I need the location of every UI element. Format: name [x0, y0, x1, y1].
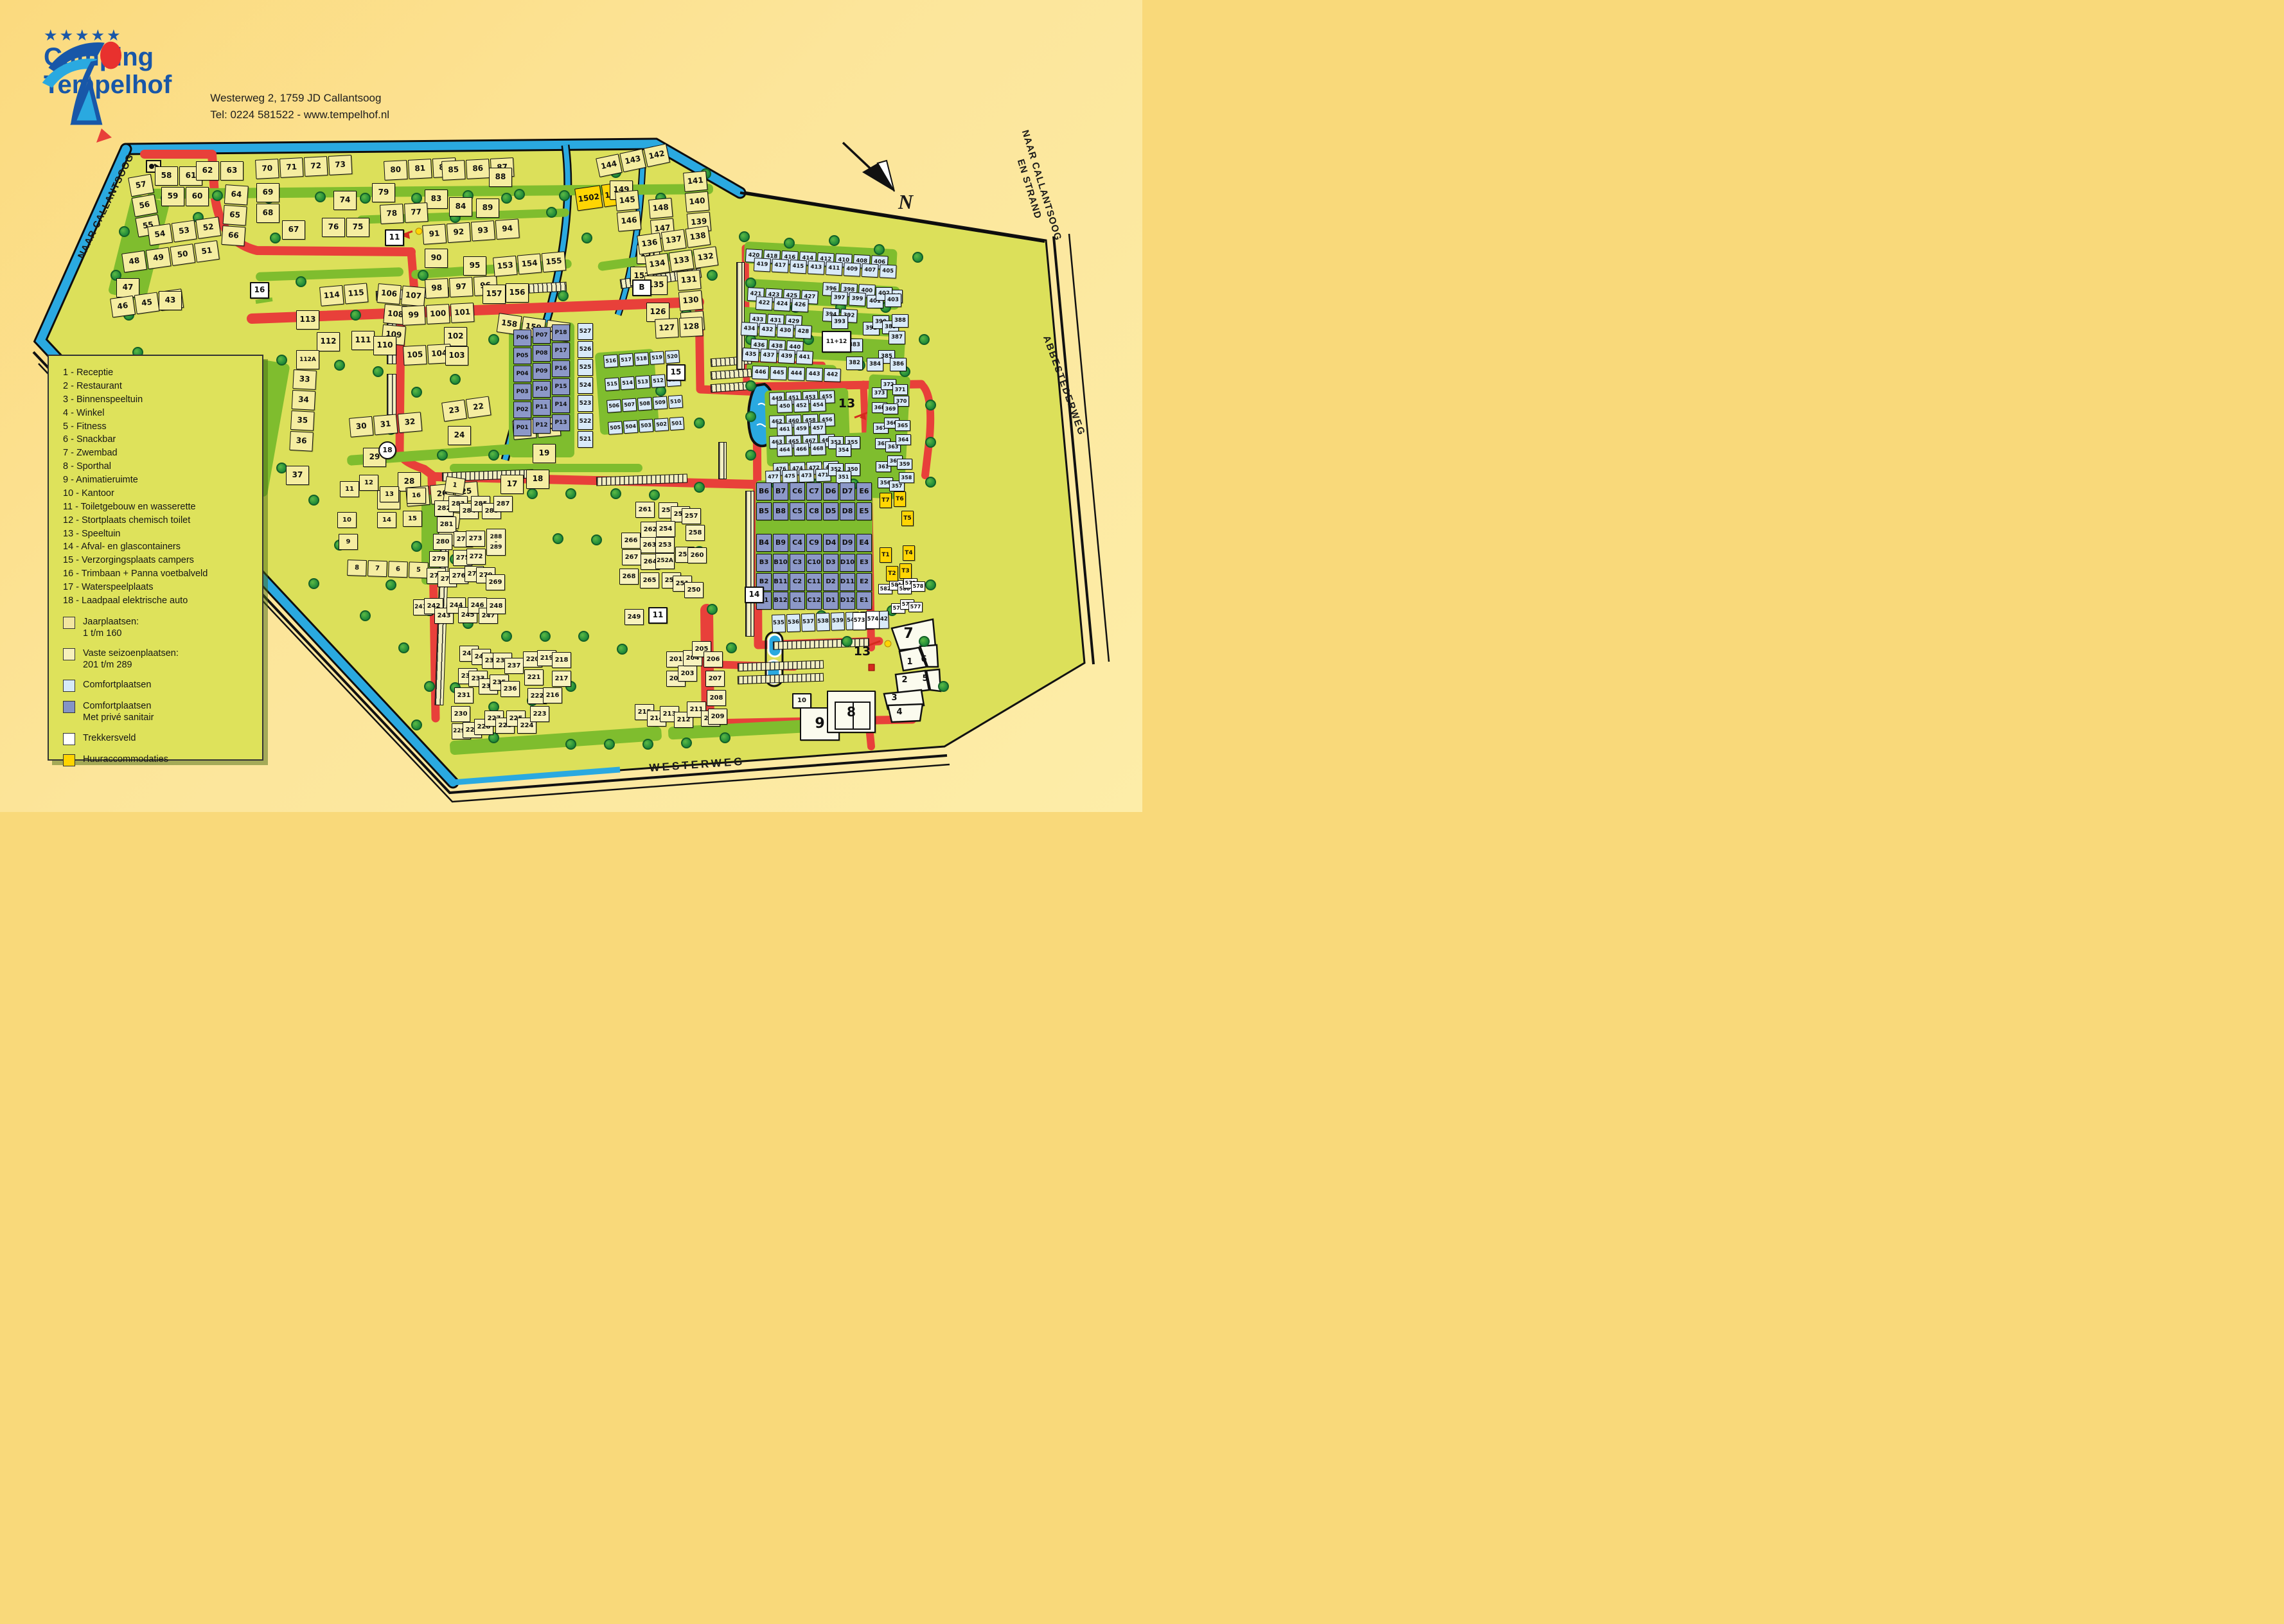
tree-icon [681, 737, 692, 748]
plot-T1: T1 [880, 547, 892, 563]
plot-D4: D4 [823, 534, 838, 552]
plot-cluster: 145146 [614, 190, 642, 233]
tree-icon [360, 610, 371, 621]
tree-icon [610, 488, 621, 499]
marker-7: 7 [899, 628, 918, 640]
tree-icon [938, 681, 949, 692]
plot-cluster: 358 [898, 472, 915, 484]
plot-88: 88 [489, 168, 512, 187]
plot-50: 50 [170, 243, 195, 266]
legend-category-label: Comfortplaatsen Met privé sanitair [83, 700, 154, 723]
tree-icon [694, 482, 705, 493]
plot-75: 75 [346, 218, 369, 237]
plot-cluster: 79 [371, 182, 396, 203]
plot-508: 508 [637, 397, 652, 410]
plot-T6: T6 [894, 491, 906, 507]
plot-92: 92 [447, 222, 471, 243]
plot-cluster: T7 [879, 492, 892, 509]
plot-P02: P02 [513, 402, 531, 418]
plot-cluster: 250 [684, 581, 704, 599]
plot-cluster: T4 [902, 545, 916, 561]
plot-146: 146 [617, 211, 641, 232]
tree-icon [270, 233, 281, 243]
plot-519: 519 [650, 351, 664, 364]
plot-388: 388 [892, 314, 908, 328]
tree-icon [437, 450, 448, 461]
plot-265: 265 [640, 572, 659, 588]
plot-85: 85 [441, 160, 466, 181]
plot-cluster: 153154155 [492, 251, 567, 278]
plot-145: 145 [615, 190, 639, 211]
plot-15: 15 [403, 511, 422, 527]
marker-13: 13 [837, 398, 856, 410]
plot-437: 437 [760, 349, 777, 363]
plot-538: 538 [816, 613, 830, 631]
plot-77: 77 [404, 202, 429, 223]
plot-cluster: 206 [703, 651, 723, 668]
plot-260: 260 [687, 547, 707, 563]
tree-icon [919, 636, 930, 647]
plot-14: 14 [377, 512, 396, 528]
plot-111: 111 [351, 331, 375, 350]
plot-C10: C10 [806, 554, 822, 572]
plot-37: 37 [286, 466, 309, 485]
plot-P15: P15 [552, 378, 570, 395]
legend-facility-16: 16 - Trimbaan + Panna voetbalveld [63, 567, 256, 581]
plot-cluster: P18P17P16P15P14P13 [551, 324, 571, 432]
plot-48: 48 [121, 251, 147, 273]
plot-445: 445 [770, 366, 787, 380]
plot-D11: D11 [840, 573, 855, 591]
marker-6: 6 [917, 653, 931, 666]
plot-505: 505 [608, 421, 623, 434]
plot-221: 221 [524, 669, 544, 685]
plot-236: 236 [500, 681, 520, 697]
plot-577: 577 [908, 602, 923, 612]
tree-icon [540, 631, 551, 642]
plot-cluster: 260 [687, 547, 707, 564]
plot-cluster: 19 [532, 443, 556, 464]
plot-516: 516 [603, 354, 618, 367]
plot-cluster: 3 [887, 691, 902, 705]
plot-cluster: 257 [681, 507, 702, 525]
plot-74: 74 [333, 191, 357, 210]
plot-B4: B4 [756, 534, 772, 552]
plot-cluster: 249 [624, 608, 644, 626]
plot-cluster: 207 [705, 670, 725, 687]
legend-facility-18: 18 - Laadpaal elektrische auto [63, 594, 256, 608]
plot-cluster: 7877 [379, 202, 429, 225]
plot-142: 142 [644, 143, 670, 167]
plot-153: 153 [493, 256, 517, 277]
plot-430: 430 [777, 324, 794, 338]
plot-223: 223 [530, 706, 549, 722]
plot-237: 237 [504, 658, 524, 674]
plot-cluster: 9 [338, 533, 359, 551]
plot-cluster: 18 [526, 469, 550, 490]
plot-454: 454 [810, 398, 826, 412]
marker-13: 13 [853, 646, 872, 658]
plot-cluster: 280 [432, 533, 453, 551]
plot-509: 509 [653, 396, 668, 409]
plot-B12: B12 [773, 592, 788, 610]
plot-536: 536 [786, 613, 801, 632]
plot-513: 513 [635, 375, 650, 389]
plot-1: 1 [444, 476, 465, 495]
plot-466: 466 [793, 443, 810, 456]
plot-144: 144 [596, 154, 622, 177]
plot-cluster: 16 [249, 281, 270, 299]
plot-cluster: 231 [454, 687, 474, 704]
plot-386: 386 [890, 358, 907, 371]
plot-217: 217 [552, 671, 571, 687]
plot-cluster: 1 [902, 655, 917, 669]
plot-517: 517 [619, 353, 633, 367]
plot-cluster: 574 [865, 610, 880, 630]
plot-79: 79 [372, 183, 395, 202]
tree-icon [842, 636, 853, 647]
plot-539: 539 [831, 612, 845, 631]
tree-icon [488, 334, 499, 345]
plot-cluster: 393 [831, 315, 849, 330]
plot-70: 70 [255, 159, 279, 179]
plot-521: 521 [578, 431, 593, 448]
plot-cluster: 11 [339, 481, 360, 498]
plot-216: 216 [543, 687, 562, 703]
plot-cluster: 252A [655, 552, 675, 570]
plot-cluster: 397399 [830, 290, 867, 307]
plot-cluster: 89 [475, 198, 500, 218]
plot-cluster: 7675 [321, 217, 370, 238]
plot-cluster: 11 [648, 606, 668, 624]
tree-icon [720, 732, 730, 743]
plot-441: 441 [796, 350, 813, 364]
legend-category-label: Trekkersveld [83, 732, 136, 745]
plot-524: 524 [578, 377, 593, 394]
legend-facility-4: 4 - Winkel [63, 407, 256, 420]
plot-cluster: 217 [551, 670, 572, 687]
plot-C8: C8 [806, 502, 822, 520]
legend-facility-13: 13 - Speeltuin [63, 527, 256, 541]
plot-cluster: 388 [891, 313, 909, 328]
plot-E5: E5 [856, 502, 872, 520]
plot-cluster: 114115 [319, 282, 369, 307]
tree-icon [398, 642, 409, 653]
plot-cluster: 16 [406, 487, 427, 504]
legend-facility-8: 8 - Sporthal [63, 460, 256, 473]
plot-131: 131 [677, 270, 701, 291]
plot-411: 411 [826, 261, 843, 276]
plot-cluster: 266 [621, 532, 641, 549]
plot-cluster: 646566 [220, 184, 249, 247]
tree-icon [919, 334, 930, 345]
marker-11: 11 [648, 607, 668, 624]
plot-94: 94 [495, 218, 520, 239]
plot-432: 432 [759, 323, 776, 337]
plot-43: 43 [159, 291, 182, 310]
plot-1502: 1502 [574, 185, 603, 211]
plot-C6: C6 [790, 482, 805, 500]
plot-cluster: 24 [447, 425, 472, 446]
tree-icon [784, 238, 795, 249]
plot-B7: B7 [773, 482, 788, 500]
plot-409: 409 [844, 262, 861, 276]
plot-53: 53 [172, 220, 197, 243]
legend-facility-1: 1 - Receptie [63, 366, 256, 380]
plot-D1: D1 [823, 592, 838, 610]
plot-76: 76 [322, 218, 345, 237]
plot-12: 12 [359, 475, 378, 491]
tree-icon [558, 290, 569, 301]
plot-P12: P12 [533, 417, 551, 434]
tree-icon [411, 719, 422, 730]
plot-136: 136 [637, 233, 662, 255]
plot-cluster: 387 [888, 330, 906, 345]
plot-9: 9 [339, 534, 358, 550]
plot-D3: D3 [823, 554, 838, 572]
tree-icon [411, 387, 422, 398]
plot-132: 132 [693, 246, 718, 269]
plot-cluster: B6B7C6C7D6D7E6 [756, 482, 872, 501]
plot-P11: P11 [533, 399, 551, 416]
parking-strip [711, 369, 752, 380]
legend-facility-9: 9 - Animatieruimte [63, 473, 256, 487]
legend-category-label: Huuraccommodaties [83, 754, 168, 766]
plot-93: 93 [471, 220, 495, 241]
plot-P10: P10 [533, 381, 551, 398]
plot-506: 506 [606, 399, 621, 412]
plot-cluster: 218 [551, 651, 572, 669]
tree-icon [925, 437, 936, 448]
header: ★★★★★ Camping Tempelhof Westerweg 2, 175… [37, 28, 389, 124]
plot-218: 218 [552, 652, 571, 668]
tree-icon [350, 310, 361, 321]
legend-category: Vaste seizoenplaatsen: 201 t/m 289 [63, 648, 256, 671]
plot-cluster: 14 [744, 586, 765, 604]
plot-cluster: 267 [621, 549, 642, 566]
plot-cluster: 382 [845, 356, 863, 371]
plot-cluster: 103 [445, 346, 469, 366]
plot-45: 45 [134, 292, 160, 315]
plot-cluster: 12 [359, 474, 379, 491]
plot-cluster: 5 [917, 672, 933, 686]
plot-B10: B10 [773, 554, 788, 572]
plot-cluster: 359 [896, 458, 913, 470]
tree-icon [315, 191, 326, 202]
plot-514: 514 [620, 376, 635, 390]
plot-cluster: 577 [908, 601, 923, 613]
parking-strip [738, 660, 824, 672]
plot-cluster: 422424426 [755, 296, 810, 313]
plot-110: 110 [373, 336, 396, 355]
tree-icon [726, 642, 737, 653]
plot-57: 57 [128, 174, 154, 197]
tree-icon [578, 631, 589, 642]
plot-384: 384 [867, 358, 883, 371]
tennis-court-lines [835, 702, 871, 730]
tree-icon [546, 207, 557, 218]
plot-98: 98 [425, 278, 449, 299]
plot-cluster: 261 [635, 501, 655, 518]
plot-cluster: 37 [285, 465, 310, 486]
legend-swatch [63, 648, 75, 660]
plot-115: 115 [344, 283, 368, 304]
plot-P06: P06 [513, 330, 531, 346]
plot-cluster: T2 [885, 565, 899, 582]
legend-swatch [63, 617, 75, 629]
tree-icon [296, 276, 306, 287]
plot-63: 63 [220, 161, 243, 181]
parking-strip [718, 442, 727, 479]
tree-icon [119, 226, 130, 237]
plot-cluster: B3B10C3C10D3D10E3 [756, 553, 872, 572]
plot-P08: P08 [533, 345, 551, 362]
plot-11: 11 [340, 481, 359, 497]
plot-18: 18 [526, 470, 549, 489]
tree-icon [334, 360, 345, 371]
plot-cluster: 8765 [346, 559, 429, 579]
plot-cluster: 17 [500, 474, 524, 495]
plot-cluster: B [632, 279, 652, 297]
plot-258: 258 [686, 525, 705, 541]
plot-59: 59 [161, 187, 184, 206]
plot-cluster: 157 [482, 284, 506, 304]
plot-112: 112 [317, 332, 340, 351]
tree-icon [559, 190, 570, 201]
plot-157: 157 [482, 285, 506, 304]
tree-icon [912, 252, 923, 263]
plot-525: 525 [578, 359, 593, 376]
plot-C2: C2 [790, 573, 805, 591]
plot-207: 207 [705, 671, 725, 687]
plot-267: 267 [622, 549, 641, 565]
plot-81: 81 [408, 159, 432, 179]
plot-49: 49 [146, 247, 172, 270]
plot-P16: P16 [552, 360, 570, 377]
tree-icon [745, 411, 756, 422]
legend-category-label: Vaste seizoenplaatsen: 201 t/m 289 [83, 648, 179, 671]
plot-D12: D12 [840, 592, 855, 610]
tree-icon [450, 374, 461, 385]
plot-cluster: T6 [893, 491, 907, 507]
plot-106: 106 [376, 283, 401, 304]
plot-C3: C3 [790, 554, 805, 572]
plot-99: 99 [402, 305, 426, 326]
plot-397: 397 [831, 291, 848, 305]
plot-C11: C11 [806, 573, 822, 591]
plot-252A: 252A [655, 553, 675, 569]
legend-category: Comfortplaatsen Met privé sanitair [63, 700, 256, 723]
plot-156: 156 [506, 283, 529, 303]
plot-91: 91 [422, 224, 447, 244]
address-block: Westerweg 2, 1759 JD Callantsoog Tel: 02… [210, 90, 389, 124]
plot-86: 86 [466, 159, 490, 179]
plot-T3: T3 [899, 563, 912, 579]
plot-cluster: 254 [655, 520, 676, 538]
plot-cluster: 111 [351, 330, 375, 351]
plot-155: 155 [542, 251, 566, 272]
plot-71: 71 [279, 157, 304, 178]
tree-icon [925, 579, 936, 590]
plot-422: 422 [756, 296, 773, 310]
plot-C12: C12 [806, 592, 822, 610]
plot-cluster: 287 [493, 495, 513, 513]
address-line: Westerweg 2, 1759 JD Callantsoog [210, 90, 389, 107]
marker-4: 4 [892, 706, 907, 719]
plot-cluster: 258 [685, 524, 705, 542]
plot-510: 510 [668, 395, 683, 409]
plot-D5: D5 [823, 502, 838, 520]
plot-133: 133 [669, 250, 695, 272]
plot-424: 424 [774, 297, 791, 312]
plot-8: 8 [347, 560, 367, 576]
plot-cluster: 2322 [441, 395, 492, 422]
plot-428: 428 [795, 324, 812, 339]
plot-P07: P07 [533, 327, 551, 344]
plot-T2: T2 [886, 566, 898, 581]
plot-69: 69 [256, 183, 279, 202]
plot-cluster: P07P08P09P10P11P12 [532, 326, 551, 434]
plot-B5: B5 [756, 502, 772, 520]
plot-cluster: 144143142 [595, 143, 671, 178]
plot-B6: B6 [756, 482, 772, 500]
tree-icon [424, 681, 435, 692]
plot-cluster: 6968 [256, 182, 280, 224]
legend-category: Huuraccommodaties [63, 754, 256, 766]
plot-cluster: 288–289 [486, 528, 506, 556]
legend-facility-list: 1 - Receptie2 - Restaurant3 - Binnenspee… [63, 366, 256, 608]
plot-B3: B3 [756, 554, 772, 572]
plot-288|–|289: 288–289 [486, 529, 506, 556]
plot-66: 66 [221, 225, 245, 246]
plot-73: 73 [328, 155, 353, 175]
plot-475: 475 [782, 470, 798, 483]
plot-138: 138 [685, 225, 711, 248]
legend: 1 - Receptie2 - Restaurant3 - Binnenspee… [48, 355, 263, 761]
plot-cluster: 446445444443442 [751, 365, 842, 383]
legend-category: Jaarplaatsen: 1 t/m 160 [63, 616, 256, 639]
plot-cluster: 248 [486, 597, 506, 615]
plot-502: 502 [654, 418, 669, 431]
plot-16: 16 [407, 488, 426, 504]
plot-405: 405 [880, 264, 897, 278]
plot-cluster: 403 [884, 293, 902, 308]
plot-253: 253 [655, 537, 675, 553]
parking-strip [387, 374, 396, 415]
plot-446: 446 [752, 366, 769, 380]
tree-icon [739, 231, 750, 242]
plot-90: 90 [425, 249, 448, 268]
tree-icon [649, 490, 660, 500]
plot-cluster: P06P05P04P03P02P01 [513, 329, 532, 437]
plot-403: 403 [885, 294, 901, 307]
plot-67: 67 [282, 220, 305, 240]
plot-D6: D6 [823, 482, 838, 500]
marker-14: 14 [745, 587, 764, 603]
plot-cluster: 208 [706, 689, 727, 707]
plot-520: 520 [665, 350, 680, 364]
plot-32: 32 [398, 412, 422, 433]
plot-130: 130 [678, 290, 703, 312]
plot-68: 68 [256, 204, 279, 223]
plot-507: 507 [622, 398, 637, 412]
plot-P18: P18 [552, 324, 570, 341]
camping-map-page: ★★★★★ Camping Tempelhof Westerweg 2, 175… [0, 0, 1142, 812]
plot-503: 503 [639, 419, 653, 432]
plot-72: 72 [304, 156, 328, 177]
plot-6: 6 [388, 561, 408, 578]
plot-23: 23 [441, 400, 467, 422]
